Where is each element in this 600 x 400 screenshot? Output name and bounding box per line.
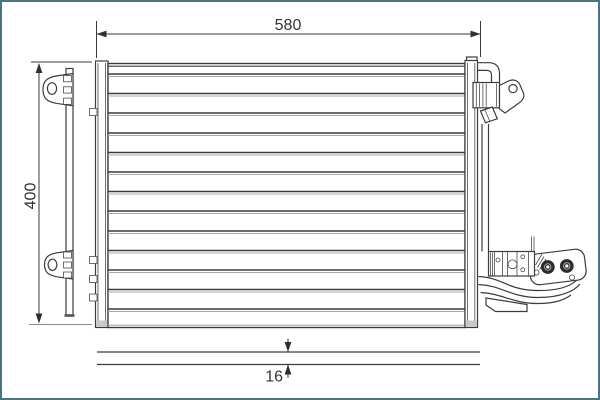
under-pipe-curve (479, 284, 581, 298)
height-dimension-label: 400 (23, 183, 40, 210)
technical-drawing-page: 580 400 16 (0, 0, 600, 400)
condenser-front-view (43, 57, 587, 328)
tank-clip (90, 294, 98, 301)
tank-clip (90, 257, 98, 264)
side-plate-foot (65, 314, 75, 317)
refrigerant-port-a-center (546, 265, 551, 270)
block-hole (508, 260, 517, 269)
core-outline (108, 64, 465, 328)
bracket-clip (64, 87, 72, 93)
depth-dimension-label: 16 (265, 369, 283, 386)
width-dimension-label: 580 (275, 17, 302, 34)
arrow-down-icon (285, 342, 292, 352)
left-header-tank (90, 61, 109, 328)
arrow-up-icon (36, 63, 43, 73)
dimension-width: 580 (97, 17, 481, 58)
dimension-depth: 16 (265, 339, 291, 386)
upper-mounting-bracket (43, 74, 73, 106)
tank-end-shade (96, 321, 107, 328)
lower-mounting-bracket (45, 251, 74, 280)
bracket-hole (48, 259, 57, 270)
condenser-technical-drawing: 580 400 16 (0, 0, 600, 400)
condenser-core (108, 64, 465, 328)
arrow-right-icon (471, 31, 481, 38)
bracket-hole (47, 83, 56, 95)
bracket-clip (64, 272, 72, 278)
tank-body (96, 61, 109, 328)
condenser-edge-profile (97, 352, 480, 365)
tank-clip (90, 109, 98, 116)
bracket-clip (64, 76, 72, 82)
pipe-stub (481, 107, 498, 123)
block-hole (521, 268, 525, 272)
block-hole (521, 255, 525, 259)
bracket-clip (64, 98, 72, 104)
tank-clip (90, 276, 98, 283)
pipe-bracket-hole (509, 85, 517, 93)
bracket-clip (64, 252, 72, 258)
lower-bracket-plate (486, 298, 527, 312)
port-mount-plate (528, 248, 587, 286)
bracket-clip (64, 262, 72, 268)
refrigerant-port-b-center (565, 264, 570, 269)
inlet-pipe-assembly (473, 63, 524, 252)
outlet-connector-assembly (479, 237, 588, 312)
block-hole (496, 258, 500, 262)
arrow-up-icon (285, 365, 292, 375)
arrow-down-icon (36, 314, 43, 324)
arrow-left-icon (97, 31, 107, 38)
tank-end-shade (466, 321, 477, 328)
plate-hole (569, 275, 574, 280)
